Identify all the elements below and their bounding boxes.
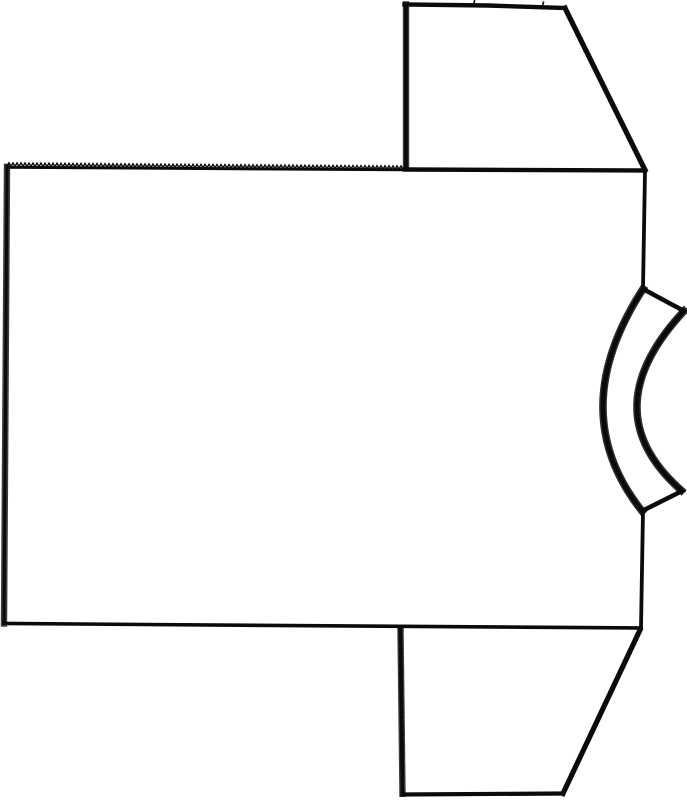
sleeve-top-notch-2 [543,2,544,6]
tshirt-pattern-drawing [0,0,687,800]
sleeve-bottom-cap-edge [403,794,564,795]
sleeve-top [405,1,646,170]
neckband [603,289,684,511]
sleeve-bottom [401,630,641,795]
sleeve-top-underarm-edge [565,8,645,170]
body-right-edge-upper [643,171,645,288]
pattern-sheet [0,0,687,800]
sleeve-top-cap-edge [405,5,566,9]
body-bottom-edge [4,624,641,629]
neckband-outer-edge-texture [637,311,684,491]
body-top-edge [7,167,405,170]
shoulder-seam-edge [405,170,645,171]
sleeve-bottom-left-edge-texture [401,630,403,795]
body-left-edge-texture [4,167,7,624]
sleeve-top-notch-1 [474,1,475,5]
body-right-edge-lower [641,511,643,628]
sleeve-bottom-underarm-edge [563,630,640,794]
body-panel [4,163,645,628]
